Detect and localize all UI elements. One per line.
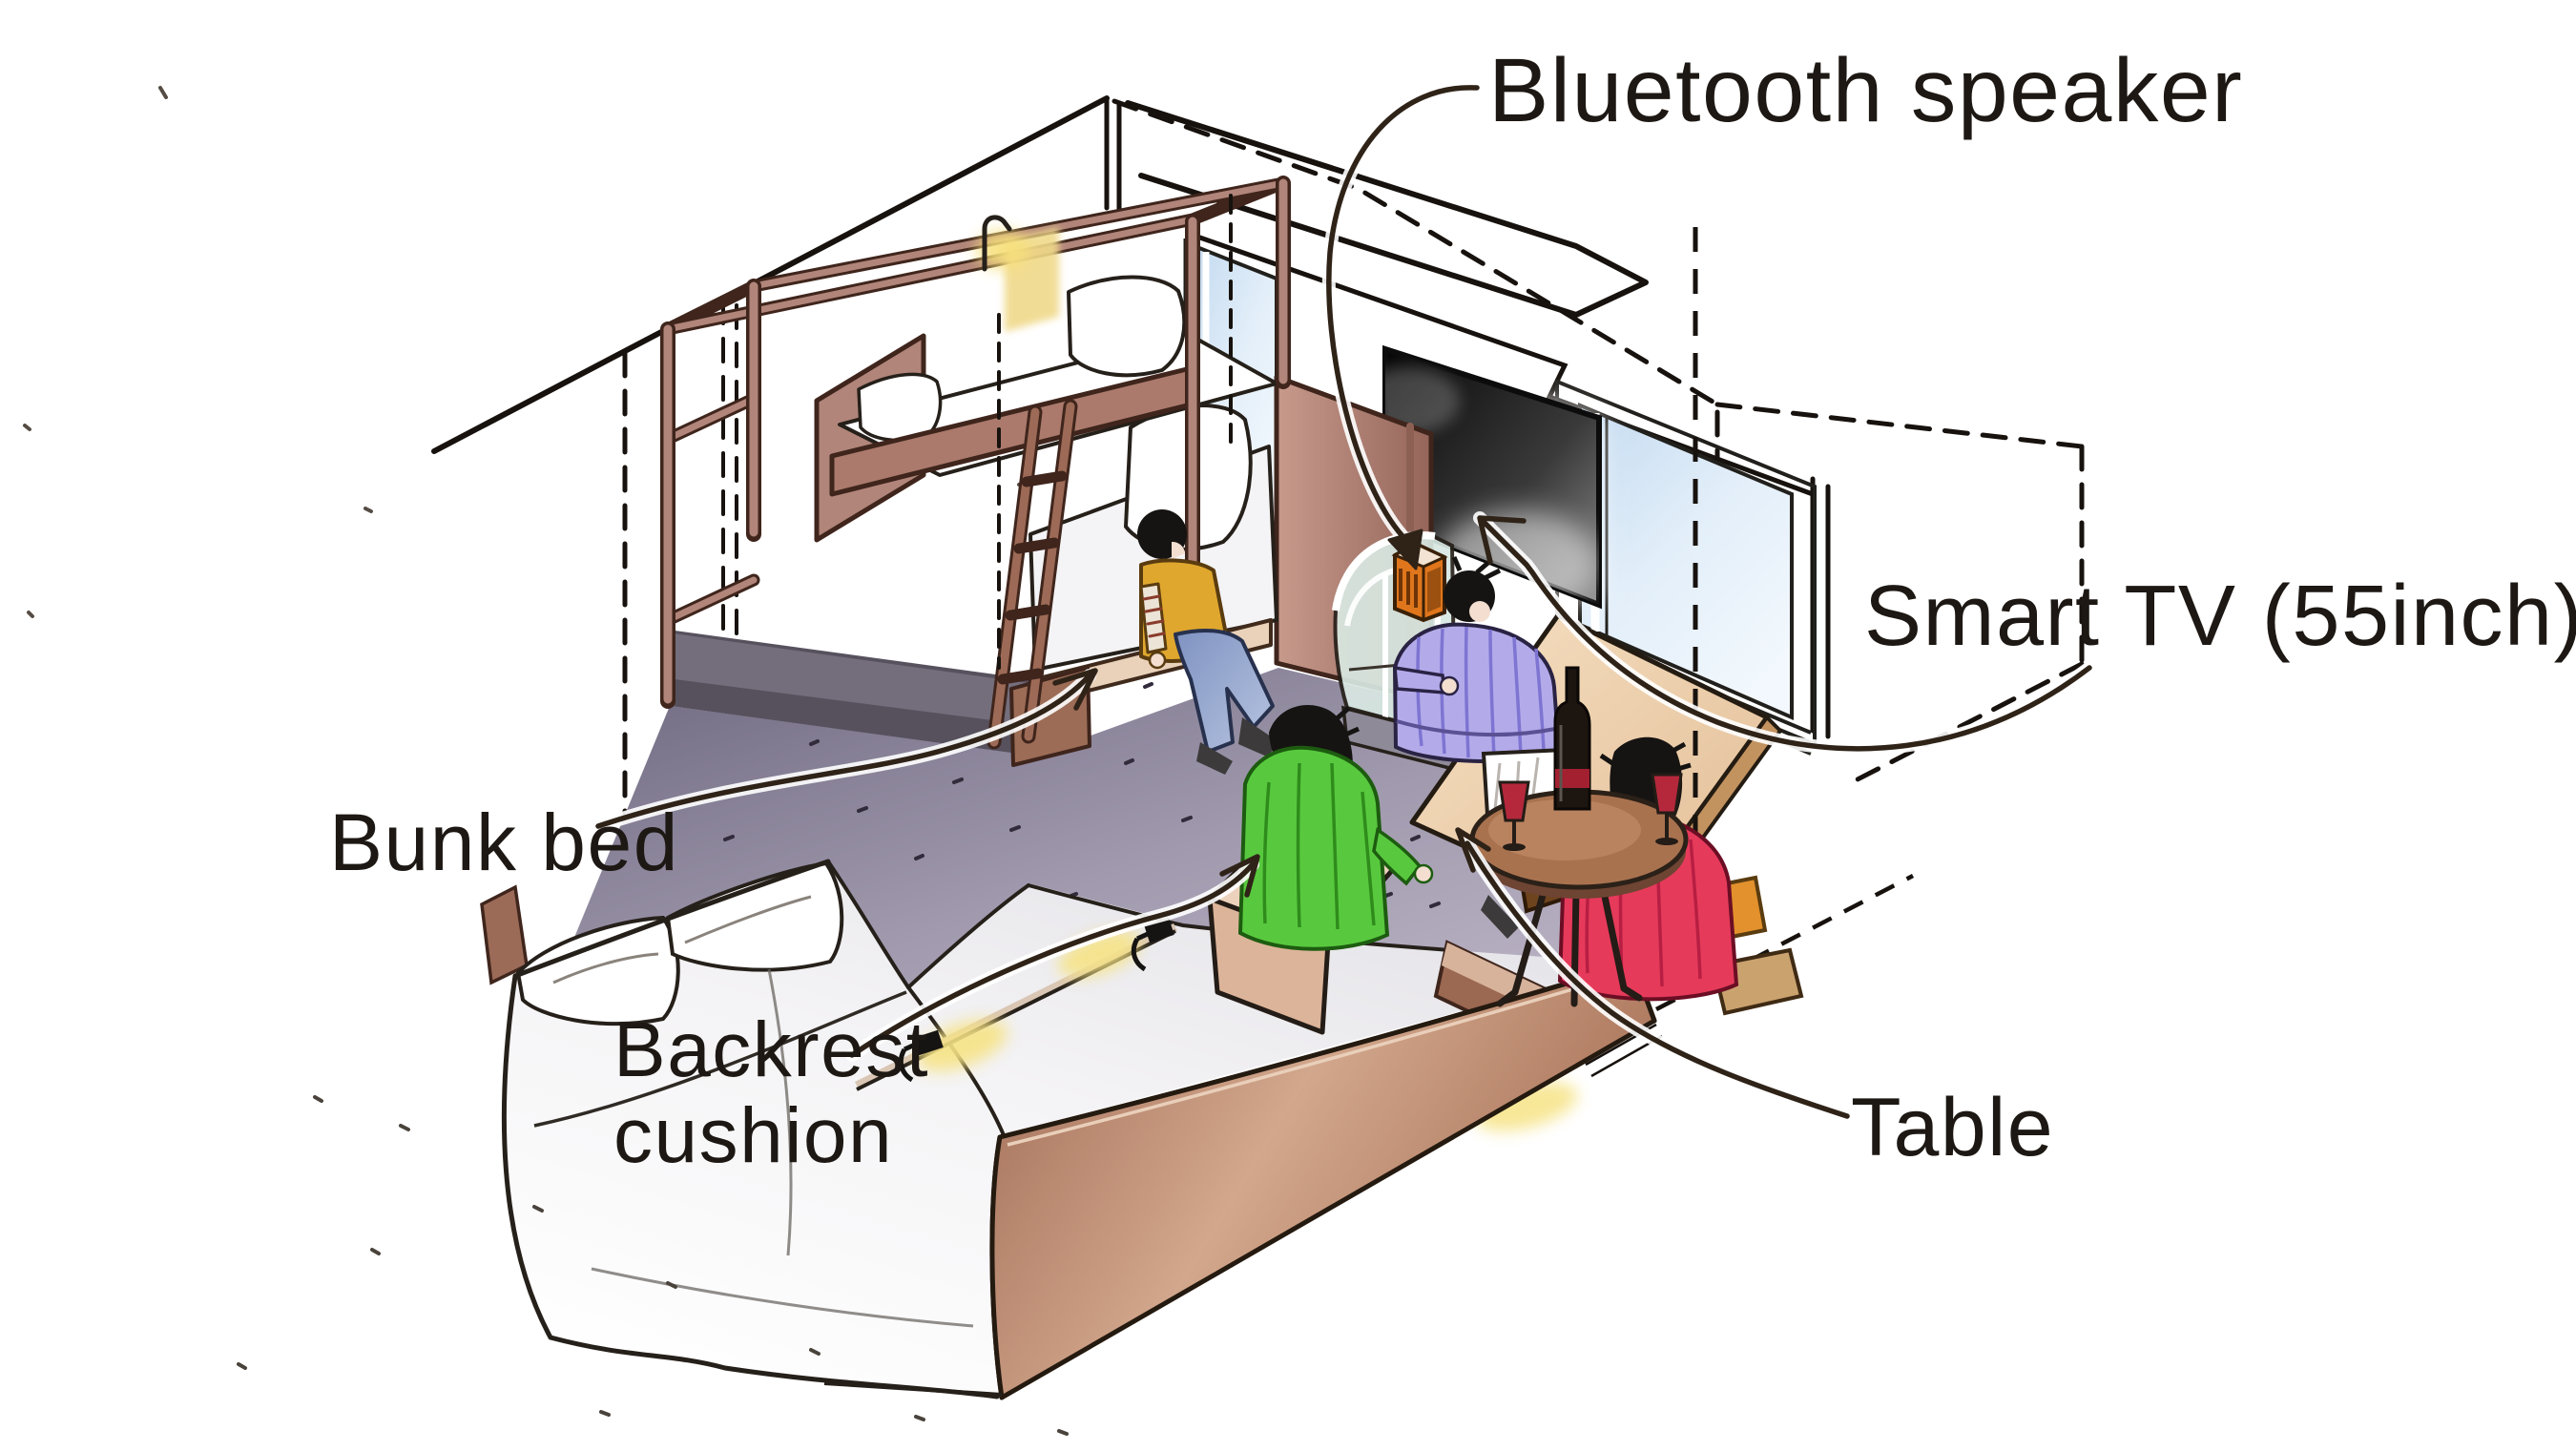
label-table: Table	[1851, 1084, 2054, 1172]
bunk-pillow-upper	[1069, 278, 1184, 376]
room-illustration	[0, 0, 2576, 1451]
label-bunk-bed: Bunk bed	[329, 799, 679, 886]
label-backrest-cushion: Backrest cushion	[613, 1007, 929, 1179]
label-smart-tv: Smart TV (55inch)	[1864, 570, 2576, 663]
room-diagram: Bluetooth speaker Smart TV (55inch) Bunk…	[0, 0, 2576, 1451]
label-bluetooth-speaker: Bluetooth speaker	[1488, 42, 2243, 140]
label-backrest-line2: cushion	[613, 1093, 929, 1179]
label-backrest-line1: Backrest	[613, 1007, 929, 1093]
